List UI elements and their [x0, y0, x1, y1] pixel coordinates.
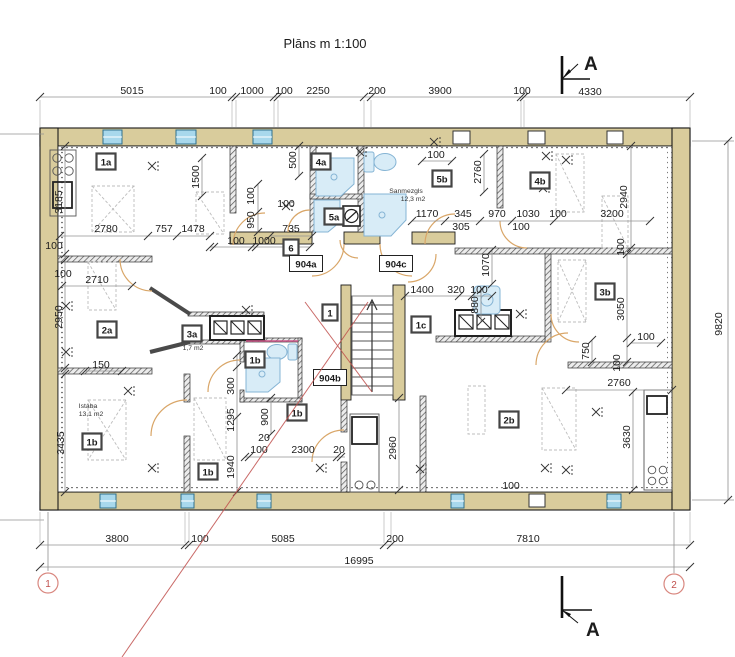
dimension-label: 20 [258, 432, 270, 444]
room-label: 1c [416, 321, 427, 332]
dimension-label: 2950 [53, 305, 65, 329]
dimension-label: 320 [447, 284, 465, 296]
annotation-text: 12,3 m2 [401, 196, 426, 203]
dimension-label: 100 [245, 187, 257, 205]
furniture-item [542, 388, 576, 450]
toilet-1b-bowl [267, 345, 287, 360]
dimension-label: 100 [275, 85, 293, 97]
dimension-label: 100 [512, 221, 530, 233]
annotation-text: Sanmezgls [389, 188, 423, 195]
dimension-label: 1000 [240, 85, 264, 97]
room-label: 1b [86, 438, 97, 449]
room-label: 5b [436, 175, 447, 186]
socket-symbol [148, 463, 158, 473]
dimension-label: 3050 [615, 297, 627, 321]
dimension-label: 1500 [190, 165, 202, 189]
dimension-label: 1400 [410, 284, 434, 296]
room-label: 6 [288, 244, 293, 255]
dimension-label: 100 [427, 149, 445, 161]
floor-plan-drawing: Plāns m 1:100 [0, 0, 735, 657]
dimension-label: 3435 [55, 431, 67, 455]
dimension-label: 1478 [181, 223, 205, 235]
dimension-label: 100 [611, 354, 623, 372]
socket-symbol [562, 465, 572, 475]
dimension-label: 1295 [225, 408, 237, 432]
room-label: 1 [327, 309, 333, 320]
dimension-label: 3900 [428, 85, 452, 97]
dimension-label: 1070 [480, 253, 492, 277]
dimension-label: 950 [245, 211, 257, 229]
mailbox-unit-left [210, 316, 264, 340]
dimension-label: 150 [92, 359, 110, 371]
toilet-5b-bowl [374, 154, 396, 171]
dimension-label: 100 [470, 284, 488, 296]
socket-symbol [62, 347, 72, 357]
room-label: 5a [329, 213, 340, 224]
dimension-label: 100 [637, 331, 655, 343]
dimension-label: 3800 [105, 533, 129, 545]
dimension-label: 1030 [516, 208, 540, 220]
dimension-label: 2960 [387, 436, 399, 460]
socket-symbol [592, 407, 602, 417]
dimension-label: 5085 [271, 533, 295, 545]
annotation-text: 13,1 m2 [79, 411, 104, 418]
section-letter-bottom: A [586, 620, 600, 641]
section-letter-top: A [584, 54, 598, 75]
socket-symbol [562, 155, 572, 165]
dimension-label: 9820 [713, 312, 725, 336]
section-marker-bottom: A [562, 576, 600, 641]
socket-symbol [516, 309, 526, 319]
dimension-label: 3185 [53, 190, 65, 214]
vent-shaft-symbol [343, 206, 360, 226]
room-label: 2a [102, 326, 113, 337]
dimension-label: 7810 [516, 533, 540, 545]
furniture-item [194, 398, 226, 460]
dimension-label: 4330 [578, 86, 602, 98]
room-label: 2b [503, 416, 514, 427]
room-label: 904b [319, 374, 341, 385]
dimension-label: 20 [333, 444, 345, 456]
room-label: 1b [249, 356, 260, 367]
dimension-label: 100 [277, 198, 295, 210]
dimension-label: 300 [225, 377, 237, 395]
socket-symbol [542, 151, 552, 161]
dimension-label: 3630 [621, 425, 633, 449]
dimension-label: 2250 [306, 85, 330, 97]
room-label: 4a [316, 158, 327, 169]
dimension-label: 2710 [85, 274, 109, 286]
dimension-label: 100 [209, 85, 227, 97]
room-label: 1a [101, 158, 112, 169]
dimension-label: 1940 [225, 455, 237, 479]
dimension-label: 100 [549, 208, 567, 220]
dimension-label: 2940 [618, 185, 630, 209]
dimension-label: 100 [502, 480, 520, 492]
dimension-label: 970 [488, 208, 506, 220]
room-label: 3a [187, 330, 198, 341]
toilet-5b-tank [364, 152, 374, 172]
dimension-label: 757 [155, 223, 173, 235]
room-label: 904a [295, 260, 317, 271]
grid-bubble-1-label: 1 [45, 579, 51, 590]
dimension-label: 3200 [600, 208, 624, 220]
dimension-label: 100 [54, 268, 72, 280]
socket-symbol [124, 386, 134, 396]
dimension-label: 2780 [94, 223, 118, 235]
dimension-label: 305 [452, 221, 470, 233]
furniture-item [468, 386, 485, 434]
grid-bubble-1: 1 [38, 573, 58, 593]
drawing-title: Plāns m 1:100 [283, 36, 366, 51]
dimension-label: 5015 [120, 85, 144, 97]
dimension-label: 100 [513, 85, 531, 97]
toilet-1b-tank [288, 344, 297, 360]
dimension-label: 16995 [344, 555, 373, 567]
dimension-label: 2760 [472, 160, 484, 184]
annotation-text: Istaba [79, 403, 98, 410]
dimension-label: 880 [469, 296, 481, 314]
dimension-label: 345 [454, 208, 472, 220]
grid-bubble-2: 2 [664, 574, 684, 594]
dimension-label: 1000 [252, 235, 276, 247]
dimension-label: 1170 [416, 208, 439, 220]
furniture-item [558, 260, 586, 322]
dimension-label: 200 [368, 85, 386, 97]
kitchen-mid [350, 414, 379, 492]
dimension-label: 200 [386, 533, 404, 545]
furniture-item [556, 154, 584, 212]
socket-symbol [148, 161, 158, 171]
dimension-label: 750 [580, 342, 592, 360]
room-label: 904c [385, 260, 406, 271]
dimension-label: 500 [287, 151, 299, 169]
dimension-label: 900 [259, 408, 271, 426]
dimension-label: 2760 [607, 377, 631, 389]
dimension-label: 100 [615, 238, 627, 256]
stairs [352, 296, 393, 395]
socket-symbol [316, 463, 326, 473]
dimension-label: 100 [45, 240, 63, 252]
grid-bubble-2-label: 2 [671, 580, 677, 591]
room-label: 3b [599, 288, 610, 299]
dimension-label: 735 [282, 223, 300, 235]
annotation-text: 1,7 m2 [183, 345, 204, 352]
socket-symbol [541, 463, 551, 473]
dimension-label: 100 [227, 235, 245, 247]
room-label: 4b [534, 177, 545, 188]
dimension-label: 2300 [291, 444, 315, 456]
room-label: 1b [202, 468, 213, 479]
